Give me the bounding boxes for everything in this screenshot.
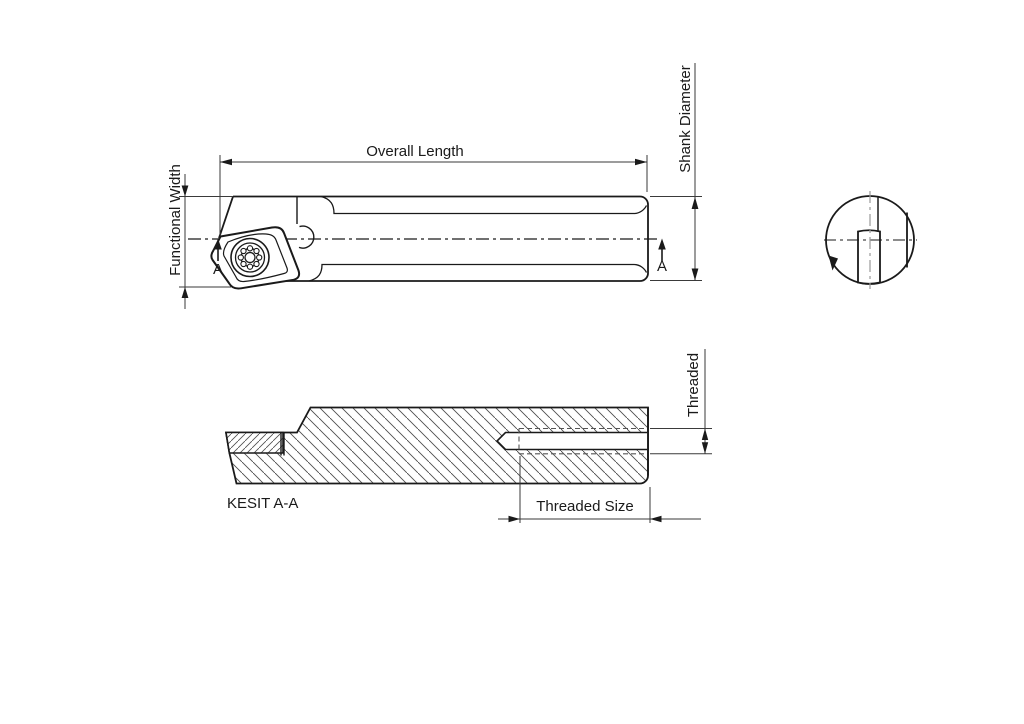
main-side-view — [188, 197, 658, 289]
end-view — [824, 191, 917, 289]
pocket-hole-arc — [299, 226, 314, 248]
section-title: KESIT A-A — [227, 495, 298, 513]
section-view — [226, 408, 648, 484]
overall-length-label: Overall Length — [330, 143, 500, 161]
threaded-size-label: Threaded Size — [485, 498, 685, 516]
flat-bottom-line — [309, 265, 647, 282]
technical-drawing-page: Overall Length Functional Width Shank Di… — [0, 0, 1024, 724]
head-left-edge — [219, 197, 233, 239]
overall-length-dimension — [220, 155, 647, 236]
section-marker-a-right: A — [652, 258, 672, 276]
drawing-svg — [0, 0, 1024, 724]
section-marker-a-left: A — [208, 261, 228, 279]
section-insert-strip — [226, 433, 283, 454]
functional-width-label: Functional Width — [167, 155, 185, 285]
shank-diameter-label: Shank Diameter — [677, 49, 695, 189]
threaded-label: Threaded — [685, 345, 703, 425]
insert-end-face — [858, 230, 880, 284]
flat-top-line — [321, 197, 647, 214]
